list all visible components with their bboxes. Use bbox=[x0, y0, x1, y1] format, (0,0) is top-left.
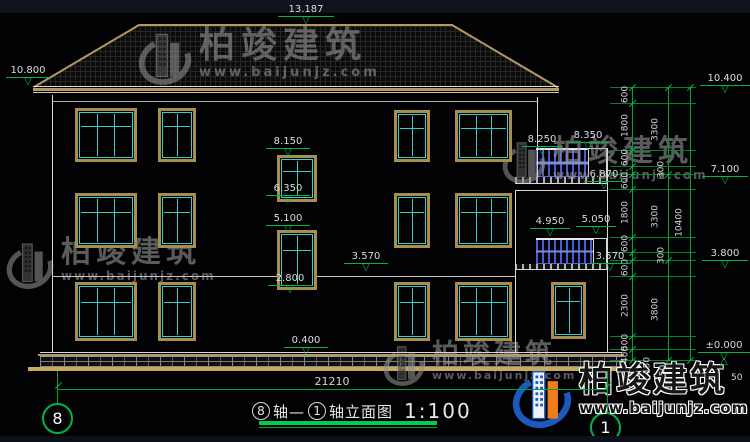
window-transom bbox=[461, 302, 506, 303]
elevation-marker: 5.100▽ bbox=[266, 214, 310, 234]
window-transom bbox=[81, 126, 131, 127]
window-transom bbox=[283, 171, 311, 172]
window-mullion bbox=[114, 114, 115, 156]
elevation-value: 3.570 bbox=[344, 252, 388, 262]
title-axis-circle-1: 1 bbox=[308, 402, 326, 420]
elevation-value: 5.050 bbox=[576, 215, 616, 225]
axis-line-1 bbox=[607, 371, 608, 413]
window-mullion bbox=[114, 288, 115, 335]
window-sash bbox=[79, 286, 133, 337]
dimension-chain-line bbox=[690, 87, 691, 360]
elevation-marker: 8.250▽ bbox=[522, 135, 562, 155]
elevation-triangle-icon: ▽ bbox=[522, 147, 562, 155]
plinth-trim bbox=[38, 354, 624, 356]
elevation-marker: 8.150▽ bbox=[266, 137, 310, 157]
brand-logo-icon bbox=[512, 363, 572, 433]
elevation-marker: 6.350▽ bbox=[266, 184, 310, 204]
elevation-drawing-canvas: 8 1 8 轴— 1 轴立面图 1:100 21210 柏竣建筑 www.bai… bbox=[0, 0, 750, 442]
watermark-brand-color: 柏竣建筑 www.baijunjz.com bbox=[512, 363, 748, 433]
window-transom bbox=[81, 302, 131, 303]
elevation-triangle-icon: ▽ bbox=[266, 149, 310, 157]
balcony-slab-line bbox=[515, 190, 608, 191]
top-border-strip bbox=[0, 0, 750, 13]
dimension-label: 2300 bbox=[622, 289, 631, 323]
elevation-marker: 7.100▽ bbox=[702, 165, 748, 185]
window-f3-d bbox=[455, 110, 512, 162]
watermark-url: www.baijunjz.com bbox=[199, 65, 380, 81]
elevation-marker: 13.187▽ bbox=[278, 5, 334, 25]
window-sash bbox=[398, 114, 426, 158]
title-axis-circle-8: 8 bbox=[252, 402, 270, 420]
elevation-value: 10.800 bbox=[6, 66, 50, 76]
elevation-marker: ±0.000▽△ bbox=[698, 341, 750, 366]
window-transom bbox=[557, 301, 580, 302]
window-mullion bbox=[177, 288, 178, 335]
elevation-marker: 2.800▽ bbox=[268, 274, 312, 294]
cornice-line bbox=[52, 101, 538, 102]
dimension-label: 600 bbox=[622, 78, 631, 112]
axis-bubble-8-label: 8 bbox=[52, 409, 62, 428]
elevation-triangle-icon: ▽ bbox=[6, 78, 50, 86]
window-sash bbox=[398, 286, 426, 337]
title-joiner: 轴— bbox=[273, 401, 305, 422]
elevation-value: 5.100 bbox=[266, 214, 310, 224]
window-sash bbox=[459, 114, 508, 158]
dimension-label: 3800 bbox=[652, 293, 661, 327]
bottom-border-strip bbox=[0, 436, 750, 442]
dimension-label: 50 bbox=[731, 374, 742, 383]
elevation-triangle-icon: ▽ bbox=[568, 143, 608, 151]
window-mullion bbox=[97, 199, 98, 242]
window-sash bbox=[398, 197, 426, 244]
dimension-label: 400 bbox=[622, 338, 631, 372]
elevation-triangle-icon: ▽ bbox=[530, 229, 570, 237]
floor-line bbox=[317, 276, 515, 277]
elevation-value: 0.400 bbox=[284, 336, 328, 346]
dimension-chain-line bbox=[668, 87, 669, 360]
window-mullion bbox=[476, 116, 477, 156]
elevation-triangle-icon: ▽ bbox=[584, 182, 624, 190]
eave-fascia bbox=[33, 88, 559, 91]
window-transom bbox=[164, 126, 190, 127]
watermark-brand: 柏竣建筑 bbox=[199, 27, 380, 65]
eave-line bbox=[33, 86, 559, 87]
elevation-triangle-icon: ▽ bbox=[590, 264, 630, 272]
window-transom bbox=[461, 128, 506, 129]
window-f1-b bbox=[158, 282, 196, 341]
elevation-marker: 6.870▽ bbox=[584, 170, 624, 190]
dimension-label-total-height: 10400 bbox=[676, 206, 685, 240]
brand-logo-icon bbox=[6, 237, 54, 293]
window-mullion bbox=[177, 199, 178, 242]
elevation-value: 4.950 bbox=[530, 217, 570, 227]
window-transom bbox=[400, 212, 424, 213]
elevation-triangle-icon: ▽ bbox=[702, 177, 748, 185]
elevation-value: 6.350 bbox=[266, 184, 310, 194]
elevation-value: 13.187 bbox=[278, 5, 334, 15]
window-mullion bbox=[476, 288, 477, 335]
elevation-value: 2.800 bbox=[268, 274, 312, 284]
dimension-label: 3300 bbox=[652, 200, 661, 234]
drawing-title: 8 轴— 1 轴立面图 1:100 bbox=[252, 399, 472, 423]
window-f2-a bbox=[75, 193, 137, 248]
watermark-top: 柏竣建筑 www.baijunjz.com bbox=[138, 27, 380, 89]
elevation-marker: 0.400▽ bbox=[284, 336, 328, 356]
dimension-label: 300 bbox=[658, 239, 667, 273]
elevation-marker: 8.350▽ bbox=[568, 131, 608, 151]
elevation-marker: 4.950▽ bbox=[530, 217, 570, 237]
dimension-label: 3300 bbox=[652, 113, 661, 147]
window-transom bbox=[400, 302, 424, 303]
window-transom bbox=[283, 250, 311, 251]
elevation-value: 10.400 bbox=[700, 74, 750, 84]
elevation-marker: 3.570▽ bbox=[344, 252, 388, 272]
elevation-triangle-icon: ▽ bbox=[576, 227, 616, 235]
elevation-marker: 3.570▽ bbox=[590, 252, 630, 272]
width-dimension-line bbox=[58, 389, 608, 390]
window-f3-b bbox=[158, 108, 196, 162]
window-sash bbox=[79, 197, 133, 244]
bay-front-edge bbox=[515, 190, 516, 352]
window-sash bbox=[162, 286, 192, 337]
title-scale: 1:100 bbox=[404, 399, 472, 423]
window-f2-b bbox=[158, 193, 196, 248]
dimension-label: 300 bbox=[658, 153, 667, 187]
window-mullion bbox=[476, 199, 477, 242]
plinth-top-line bbox=[40, 352, 622, 353]
total-width-dimension: 21210 bbox=[302, 377, 362, 386]
window-sash bbox=[79, 112, 133, 158]
elevation-value: 6.870 bbox=[584, 170, 624, 180]
brand-logo-icon bbox=[138, 27, 192, 89]
elevation-value: 8.150 bbox=[266, 137, 310, 147]
elevation-value: 7.100 bbox=[702, 165, 748, 175]
dimension-chain-line bbox=[632, 87, 633, 360]
window-f3-c bbox=[394, 110, 430, 162]
window-mullion bbox=[491, 288, 492, 335]
window-sash bbox=[162, 197, 192, 244]
title-underline-thick bbox=[259, 421, 437, 425]
dimension-label: 1800 bbox=[622, 109, 631, 143]
window-mullion bbox=[177, 114, 178, 156]
elevation-value: 8.350 bbox=[568, 131, 608, 141]
window-mullion bbox=[569, 288, 570, 333]
window-f3-a bbox=[75, 108, 137, 162]
elevation-triangle-icon: ▽ bbox=[278, 17, 334, 25]
elevation-triangle-up-icon: △ bbox=[698, 358, 750, 366]
lower-balcony-railing bbox=[536, 238, 593, 264]
window-f2-d bbox=[455, 193, 512, 248]
elevation-triangle-icon: ▽ bbox=[702, 261, 748, 269]
window-f1-bay bbox=[551, 282, 586, 339]
elevation-triangle-icon: ▽ bbox=[344, 264, 388, 272]
elevation-triangle-icon: ▽ bbox=[284, 348, 328, 356]
elevation-triangle-icon: ▽ bbox=[700, 86, 750, 94]
window-transom bbox=[164, 302, 190, 303]
watermark-url: www.baijunjz.com bbox=[579, 399, 748, 417]
dimension-label: 50 bbox=[660, 354, 669, 388]
watermark-text: 柏竣建筑 www.baijunjz.com bbox=[199, 27, 380, 80]
window-transom bbox=[164, 212, 190, 213]
elevation-triangle-icon: ▽ bbox=[268, 286, 312, 294]
window-mullion bbox=[97, 288, 98, 335]
window-mullion bbox=[114, 199, 115, 242]
window-mullion bbox=[97, 114, 98, 156]
elevation-marker: 10.800▽ bbox=[6, 66, 50, 86]
eave-line bbox=[33, 92, 559, 93]
elevation-value: 8.250 bbox=[522, 135, 562, 145]
window-f1-d bbox=[455, 282, 512, 341]
window-mullion bbox=[491, 116, 492, 156]
window-mullion bbox=[412, 199, 413, 242]
elevation-value: 3.800 bbox=[702, 249, 748, 259]
window-sash bbox=[162, 112, 192, 158]
axis-bubble-8: 8 bbox=[42, 403, 73, 434]
floor-line bbox=[52, 276, 277, 277]
window-mullion bbox=[491, 199, 492, 242]
window-f1-c bbox=[394, 282, 430, 341]
window-sash bbox=[555, 286, 582, 335]
window-transom bbox=[461, 212, 506, 213]
dimension-label: 1800 bbox=[622, 196, 631, 230]
window-f1-a bbox=[75, 282, 137, 341]
elevation-marker: 5.050▽ bbox=[576, 215, 616, 235]
title-underline-thin bbox=[259, 427, 437, 428]
window-f2-c bbox=[394, 193, 430, 248]
elevation-marker: 10.400▽ bbox=[700, 74, 750, 94]
window-sash bbox=[459, 286, 508, 337]
wall-left-edge bbox=[52, 95, 53, 353]
window-sash bbox=[459, 197, 508, 244]
elevation-value: 3.570 bbox=[590, 252, 630, 262]
window-transom bbox=[81, 212, 131, 213]
window-mullion bbox=[412, 116, 413, 156]
title-suffix: 轴立面图 bbox=[329, 401, 393, 422]
elevation-triangle-icon: ▽ bbox=[266, 196, 310, 204]
elevation-triangle-icon: ▽ bbox=[266, 226, 310, 234]
window-mullion bbox=[412, 288, 413, 335]
elevation-value: ±0.000 bbox=[698, 341, 750, 351]
brand-logo-icon bbox=[383, 341, 425, 389]
elevation-marker: 3.800▽ bbox=[702, 249, 748, 269]
window-transom bbox=[400, 128, 424, 129]
dimension-label: 150 bbox=[644, 349, 653, 383]
